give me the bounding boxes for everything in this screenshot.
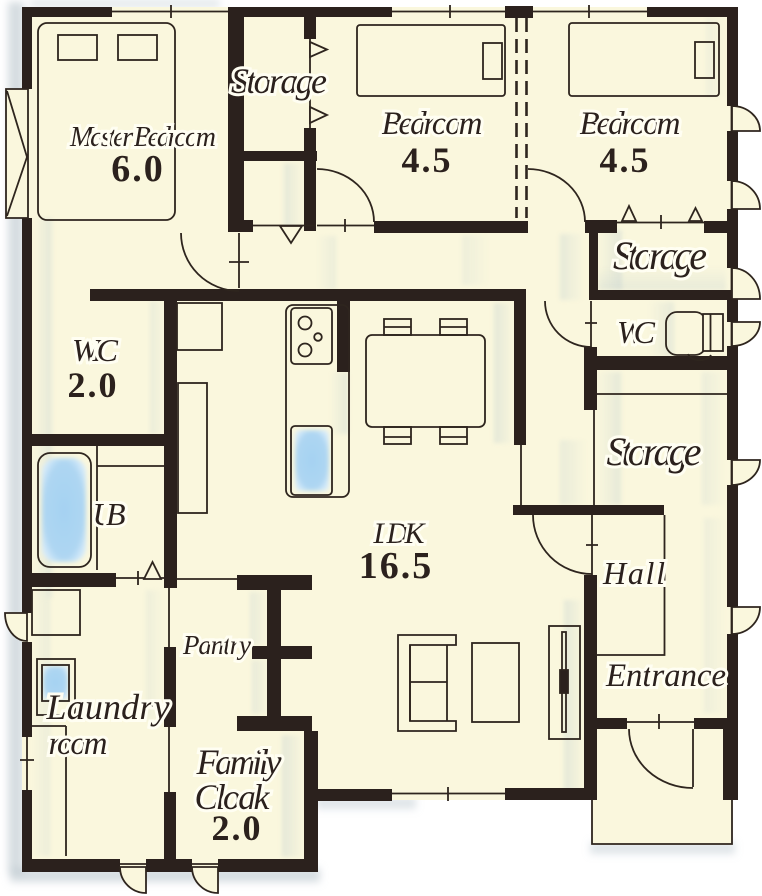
svg-text:WIC: WIC bbox=[72, 332, 119, 368]
svg-text:Bedroom: Bedroom bbox=[382, 106, 483, 142]
svg-text:Entrance: Entrance bbox=[605, 658, 726, 694]
svg-text:room: room bbox=[49, 726, 108, 762]
svg-text:2.0: 2.0 bbox=[68, 365, 119, 405]
svg-text:UB: UB bbox=[93, 496, 126, 532]
svg-text:Bedroom: Bedroom bbox=[580, 106, 681, 142]
svg-text:Family: Family bbox=[196, 742, 282, 782]
svg-text:2.0: 2.0 bbox=[212, 808, 263, 848]
svg-text:Hall: Hall bbox=[602, 555, 665, 591]
svg-text:Pantry: Pantry bbox=[182, 630, 251, 660]
svg-text:WC: WC bbox=[617, 314, 656, 350]
svg-text:6.0: 6.0 bbox=[111, 148, 165, 190]
svg-text:16.5: 16.5 bbox=[359, 545, 434, 587]
svg-text:Laundry: Laundry bbox=[46, 687, 170, 727]
svg-text:4.5: 4.5 bbox=[402, 140, 453, 180]
svg-text:Storage: Storage bbox=[231, 61, 327, 101]
svg-text:Storage: Storage bbox=[613, 233, 707, 278]
svg-text:4.5: 4.5 bbox=[600, 140, 651, 180]
svg-text:Storage: Storage bbox=[607, 429, 702, 474]
